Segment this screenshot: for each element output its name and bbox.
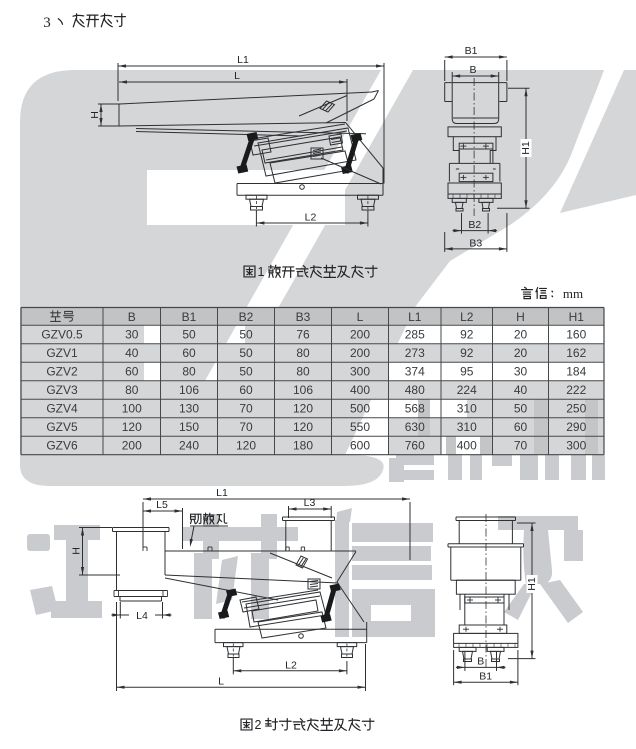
svg-text:L1: L1 — [237, 54, 249, 66]
svg-text:20: 20 — [514, 328, 528, 342]
svg-text:106: 106 — [293, 383, 313, 397]
svg-text:H: H — [71, 547, 83, 555]
svg-text:70: 70 — [514, 439, 528, 453]
svg-text:374: 374 — [405, 365, 425, 379]
svg-text:180: 180 — [293, 439, 313, 453]
svg-text:600: 600 — [350, 439, 370, 453]
svg-text:60: 60 — [239, 383, 253, 397]
svg-text:GZV3: GZV3 — [46, 383, 78, 397]
svg-text:50: 50 — [239, 346, 253, 360]
svg-text:B1: B1 — [465, 45, 478, 57]
svg-text:162: 162 — [566, 346, 586, 360]
svg-text:L3: L3 — [304, 497, 316, 509]
svg-text:290: 290 — [566, 420, 586, 434]
svg-text:60: 60 — [182, 346, 196, 360]
svg-text:184: 184 — [566, 365, 586, 379]
svg-text:80: 80 — [296, 346, 310, 360]
svg-text:L2: L2 — [285, 659, 297, 671]
svg-text:30: 30 — [514, 365, 528, 379]
svg-text:20: 20 — [514, 346, 528, 360]
svg-text:95: 95 — [460, 365, 474, 379]
svg-text:L: L — [218, 676, 224, 688]
svg-text:150: 150 — [179, 420, 199, 434]
svg-text:L1: L1 — [408, 310, 422, 324]
svg-text:80: 80 — [125, 383, 139, 397]
svg-text:568: 568 — [405, 402, 425, 416]
svg-text:L: L — [357, 310, 364, 324]
svg-text:400: 400 — [350, 383, 370, 397]
svg-text:310: 310 — [457, 420, 477, 434]
svg-text:L2: L2 — [305, 212, 317, 224]
svg-text:2: 2 — [255, 718, 262, 732]
svg-text:60: 60 — [514, 420, 528, 434]
svg-text:200: 200 — [350, 328, 370, 342]
svg-text:550: 550 — [350, 420, 370, 434]
svg-text:106: 106 — [179, 383, 199, 397]
svg-text:mm: mm — [563, 286, 583, 301]
svg-text:500: 500 — [350, 402, 370, 416]
svg-text:300: 300 — [566, 439, 586, 453]
svg-text:100: 100 — [122, 402, 142, 416]
svg-text:L2: L2 — [460, 310, 474, 324]
svg-text:120: 120 — [293, 420, 313, 434]
svg-text:GZV4: GZV4 — [46, 402, 78, 416]
svg-text:285: 285 — [405, 328, 425, 342]
svg-text:120: 120 — [293, 402, 313, 416]
svg-text:120: 120 — [122, 420, 142, 434]
svg-text:L4: L4 — [136, 610, 148, 622]
svg-text:H1: H1 — [526, 577, 538, 591]
svg-text:760: 760 — [405, 439, 425, 453]
svg-text:92: 92 — [460, 346, 474, 360]
svg-text:310: 310 — [457, 402, 477, 416]
svg-text:B: B — [128, 310, 136, 324]
svg-text:70: 70 — [239, 420, 253, 434]
svg-text:92: 92 — [460, 328, 474, 342]
svg-text:224: 224 — [457, 383, 477, 397]
svg-text:50: 50 — [514, 402, 528, 416]
svg-text:B2: B2 — [468, 219, 481, 231]
svg-text:240: 240 — [179, 439, 199, 453]
svg-text:3: 3 — [43, 15, 51, 31]
svg-text:222: 222 — [566, 383, 586, 397]
svg-text:70: 70 — [239, 402, 253, 416]
svg-text:B2: B2 — [239, 310, 254, 324]
svg-text:250: 250 — [566, 402, 586, 416]
svg-text:H: H — [516, 310, 525, 324]
svg-text:76: 76 — [296, 328, 310, 342]
svg-text:30: 30 — [125, 328, 139, 342]
svg-text:GZV0.5: GZV0.5 — [41, 328, 83, 342]
svg-text:B: B — [477, 656, 484, 668]
svg-text:H1: H1 — [569, 310, 585, 324]
svg-text:200: 200 — [122, 439, 142, 453]
svg-text:H1: H1 — [520, 141, 532, 155]
svg-text:160: 160 — [566, 328, 586, 342]
svg-text:50: 50 — [239, 328, 253, 342]
svg-text:1: 1 — [258, 265, 265, 279]
svg-text:B3: B3 — [296, 310, 311, 324]
svg-text:80: 80 — [182, 365, 196, 379]
svg-text:80: 80 — [296, 365, 310, 379]
svg-text:300: 300 — [350, 365, 370, 379]
svg-text:L: L — [234, 70, 240, 82]
svg-text:B3: B3 — [469, 237, 482, 249]
svg-text:GZV1: GZV1 — [46, 346, 78, 360]
svg-text:L5: L5 — [156, 499, 168, 511]
svg-text:480: 480 — [405, 383, 425, 397]
svg-text:50: 50 — [239, 365, 253, 379]
svg-text:L1: L1 — [216, 487, 228, 499]
svg-text:GZV6: GZV6 — [46, 439, 78, 453]
svg-text:273: 273 — [405, 346, 425, 360]
svg-text:H: H — [89, 111, 101, 119]
svg-text:630: 630 — [405, 420, 425, 434]
svg-text:400: 400 — [457, 439, 477, 453]
svg-text:60: 60 — [125, 365, 139, 379]
svg-text:B1: B1 — [182, 310, 197, 324]
svg-text:120: 120 — [236, 439, 256, 453]
svg-text:GZV2: GZV2 — [46, 365, 78, 379]
svg-text:B1: B1 — [479, 670, 492, 682]
svg-text:GZV5: GZV5 — [46, 420, 78, 434]
svg-text:130: 130 — [179, 402, 199, 416]
svg-text:40: 40 — [125, 346, 139, 360]
svg-text:40: 40 — [514, 383, 528, 397]
svg-text:200: 200 — [350, 346, 370, 360]
svg-text:B: B — [469, 64, 476, 76]
svg-text:50: 50 — [182, 328, 196, 342]
